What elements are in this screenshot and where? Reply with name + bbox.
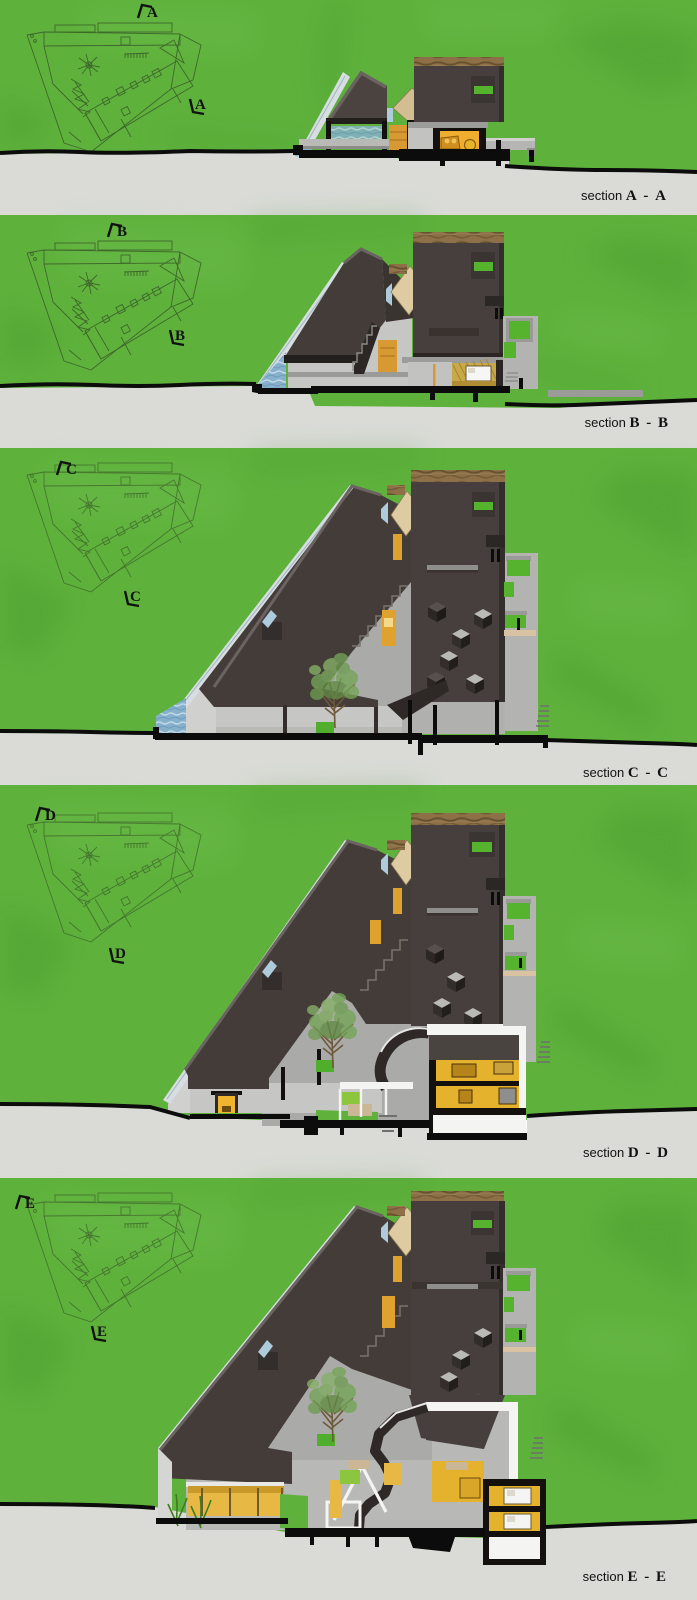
svg-text:E: E: [25, 1196, 35, 1212]
svg-text:B: B: [175, 328, 185, 344]
svg-text:section D - D: section D - D: [583, 1145, 668, 1161]
svg-text:E: E: [97, 1324, 107, 1340]
svg-text:section E - E: section E - E: [583, 1569, 666, 1585]
svg-text:C: C: [130, 589, 141, 605]
svg-text:A: A: [195, 97, 206, 113]
svg-text:B: B: [117, 224, 127, 240]
svg-text:D: D: [115, 946, 126, 962]
svg-text:D: D: [45, 808, 56, 824]
svg-text:A: A: [147, 5, 158, 21]
svg-text:C: C: [66, 462, 77, 478]
svg-text:section B - B: section B - B: [585, 415, 668, 431]
svg-text:section C - C: section C - C: [583, 765, 668, 781]
svg-text:section A - A: section A - A: [581, 188, 666, 204]
